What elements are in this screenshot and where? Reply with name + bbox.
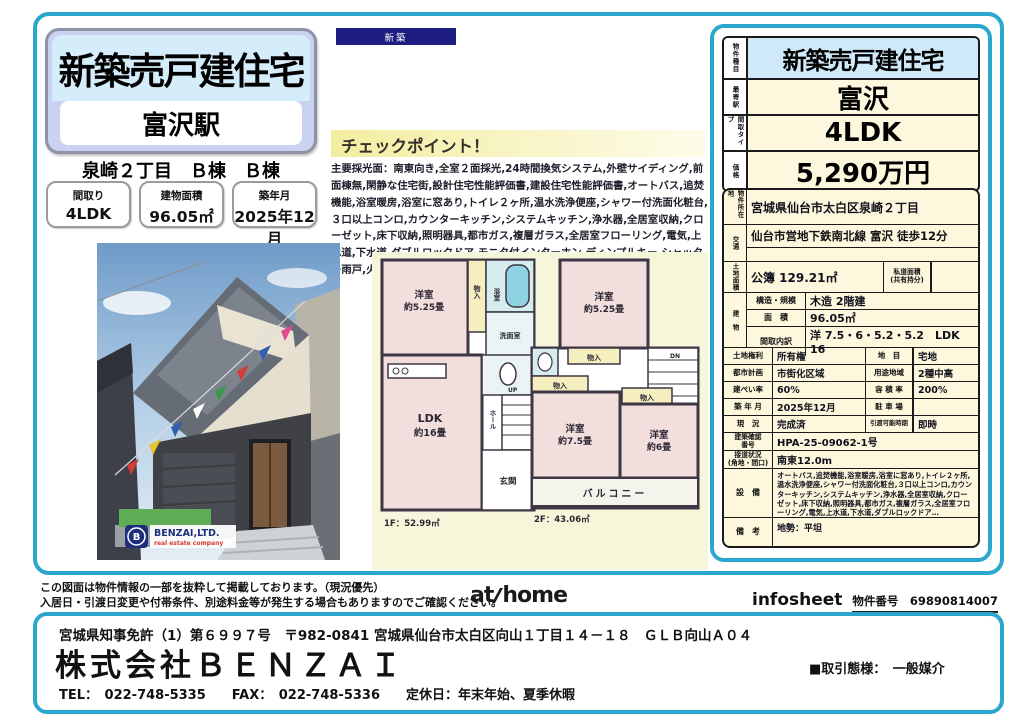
summary-label: 間取タイプ [725, 116, 745, 150]
svg-text:DN: DN [670, 353, 680, 360]
company-name: 株式会社ＢＥＮＺＡＩ [55, 640, 405, 685]
title-card: 新築売戸建住宅 富沢駅 [45, 28, 317, 154]
svg-text:約5.25畳: 約5.25畳 [404, 301, 444, 313]
summary-label: 価格 [730, 164, 740, 179]
svg-text:1F：52.99㎡: 1F：52.99㎡ [384, 518, 440, 529]
spec-value: 4LDK [48, 205, 129, 223]
label-building: 建 物 [730, 310, 740, 331]
value-access: 仙台市営地下鉄南北線 富沢 徒歩12分 [747, 225, 978, 247]
summary-label: 最寄駅 [730, 86, 740, 109]
row-built: 築 年 月2025年12月 駐 車 場 [724, 398, 978, 415]
value-remarks: 地勢：平坦 [773, 518, 978, 546]
property-type-title: 新築売戸建住宅 [52, 35, 310, 101]
value-road: 南東12.0m [773, 451, 978, 468]
label-structure: 構造・規模 [747, 293, 806, 309]
svg-text:バルコニー: バルコニー [583, 488, 648, 500]
svg-text:LDK: LDK [418, 412, 443, 425]
checkpoint-heading: チェックポイント！ [331, 130, 705, 157]
label-land-area: 土地面積 [730, 263, 740, 291]
infosheet-label: infosheet [752, 590, 842, 610]
value-location: 宮城県仙台市太白区泉崎２丁目 [747, 190, 978, 224]
svg-text:浴室: 浴室 [492, 287, 500, 303]
property-summary-panel: 物件種目 新築売戸建住宅 最寄駅 富沢 間取タイプ 4LDK 価格 5,290万… [710, 24, 992, 562]
exterior-photo: B BENZAI,LTD. real estate company [97, 243, 340, 560]
floorplans: 洋室 約5.25畳 物入 浴室 洗面室 LDK 約16畳 ホール UP 玄関 1… [372, 252, 708, 570]
company-box: 宮城県知事免許（1）第６９９７号 〒982-0841 宮城県仙台市太白区向山１丁… [33, 612, 1004, 714]
value-private-road [931, 262, 978, 292]
svg-text:B: B [133, 532, 141, 543]
property-number: 物件番号 69890814007 [852, 593, 998, 613]
svg-text:約7.5畳: 約7.5畳 [558, 435, 592, 447]
spec-label: 建物面積 [141, 188, 222, 203]
value-building-area: 96.05㎡ [806, 310, 978, 326]
row-access: 交通 仙台市営地下鉄南北線 富沢 徒歩12分 [724, 224, 978, 261]
row-status: 現 況完成済 引渡可能時期即時 [724, 415, 978, 432]
row-rights: 土地権利所有権 地 目宅地 [724, 347, 978, 364]
location-line: 泉崎２丁目 Ｂ棟 Ｂ棟 [40, 157, 322, 183]
value-confirmation-number: HPA-25-09062-1号 [773, 433, 978, 450]
value-access2 [747, 247, 978, 261]
svg-text:real estate company: real estate company [154, 540, 223, 547]
svg-text:約16畳: 約16畳 [414, 427, 447, 439]
svg-text:玄関: 玄関 [499, 476, 516, 487]
row-remarks: 備 考 地勢：平坦 [724, 517, 978, 546]
infosheet-block: infosheet 物件番号 69890814007 [752, 590, 998, 613]
svg-text:ホール: ホール [488, 410, 496, 430]
summary-label: 物件種目 [730, 43, 740, 73]
spec-label: 築年月 [234, 188, 315, 203]
label-access: 交通 [730, 236, 740, 250]
summary-value: 富沢 [748, 80, 978, 114]
svg-text:物入: 物入 [587, 353, 601, 362]
summary-row-type: 物件種目 新築売戸建住宅 [724, 38, 978, 78]
summary-table: 物件種目 新築売戸建住宅 最寄駅 富沢 間取タイプ 4LDK 価格 5,290万… [722, 36, 980, 192]
value-structure: 木造 2階建 [806, 293, 978, 309]
row-cityplan: 都市計画市街化区域 用途地域2種中高 [724, 364, 978, 381]
svg-text:物入: 物入 [473, 284, 482, 300]
svg-text:洋室: 洋室 [649, 429, 669, 441]
transaction-type: ■取引態様： 一般媒介 [809, 658, 945, 677]
spec-label: 間取り [48, 188, 129, 203]
disclaimer-line2: 入居日・引渡日変更や付帯条件、別途料金等が発生する場合もありますのでご確認くださ… [40, 594, 502, 610]
svg-text:UP: UP [508, 387, 518, 394]
svg-text:物入: 物入 [553, 381, 567, 390]
summary-value: 4LDK [748, 116, 978, 150]
row-land: 土地面積 公簿 129.21㎡ 私道面積 (共有持分) [724, 261, 978, 292]
row-location: 物件所在地 宮城県仙台市太白区泉崎２丁目 [724, 190, 978, 224]
company-contact: TEL： 022-748-5335 FAX： 022-748-5336 定休日：… [59, 684, 575, 703]
label-location: 物件所在地 [725, 190, 745, 224]
label-remarks: 備 考 [724, 518, 773, 546]
spec-box-area: 建物面積 96.05㎡ [139, 181, 224, 228]
property-flyer: 新築売戸建住宅 富沢駅 泉崎２丁目 Ｂ棟 Ｂ棟 間取り 4LDK 建物面積 96… [0, 0, 1024, 724]
summary-row-station: 最寄駅 富沢 [724, 78, 978, 114]
svg-text:BENZAI,LTD.: BENZAI,LTD. [154, 528, 220, 539]
svg-text:洋室: 洋室 [594, 291, 614, 303]
summary-value: 新築売戸建住宅 [748, 38, 978, 78]
row-confirmation: 建築確認番号 HPA-25-09062-1号 [724, 432, 978, 450]
price-value: 5,290万円 [748, 152, 978, 190]
svg-text:洗面室: 洗面室 [500, 331, 521, 340]
row-equipment: 設 備 オートバス,追焚機能,浴室暖房,浴室に窓あり,トイレ２ヶ所,温水洗浄便座… [724, 468, 978, 517]
spec-value: 96.05㎡ [141, 205, 222, 227]
label-building-area: 面 積 [747, 310, 806, 326]
svg-text:物入: 物入 [640, 393, 654, 402]
floorplan-1f [382, 260, 534, 510]
row-coverage: 建ぺい率60% 容 積 率200% [724, 381, 978, 398]
spec-box-built: 築年月 2025年12月 [232, 181, 317, 228]
svg-text:約6畳: 約6畳 [647, 441, 671, 453]
detail-table: 物件所在地 宮城県仙台市太白区泉崎２丁目 交通 仙台市営地下鉄南北線 富沢 徒歩… [722, 188, 980, 548]
station-name: 富沢駅 [60, 101, 302, 145]
summary-row-layout: 間取タイプ 4LDK [724, 114, 978, 150]
photo-benzai-logo: B BENZAI,LTD. real estate company [125, 525, 236, 548]
svg-text:約5.25畳: 約5.25畳 [584, 303, 624, 315]
label-equipment: 設 備 [724, 469, 773, 517]
svg-text:洋室: 洋室 [565, 423, 585, 435]
svg-text:洋室: 洋室 [414, 289, 434, 301]
spec-box-layout: 間取り 4LDK [46, 181, 131, 228]
disclaimer-line1: この図面は物件情報の一部を抜粋して掲載しております。（現況優先） [40, 579, 384, 595]
value-land-area: 公簿 129.21㎡ [747, 262, 883, 292]
value-equipment: オートバス,追焚機能,浴室暖房,浴室に窓あり,トイレ２ヶ所,温水洗浄便座,シャワ… [773, 469, 978, 517]
row-road: 接道状況(角地・間口) 南東12.0m [724, 450, 978, 468]
row-building: 建 物 構造・規模 木造 2階建 面 積 96.05㎡ 間取内訳 洋 7.5・6… [724, 292, 978, 347]
summary-row-price: 価格 5,290万円 [724, 150, 978, 190]
new-construction-badge: 新築 [336, 28, 456, 45]
athome-logo: at home [470, 583, 567, 608]
svg-text:2F：43.06㎡: 2F：43.06㎡ [534, 514, 590, 525]
